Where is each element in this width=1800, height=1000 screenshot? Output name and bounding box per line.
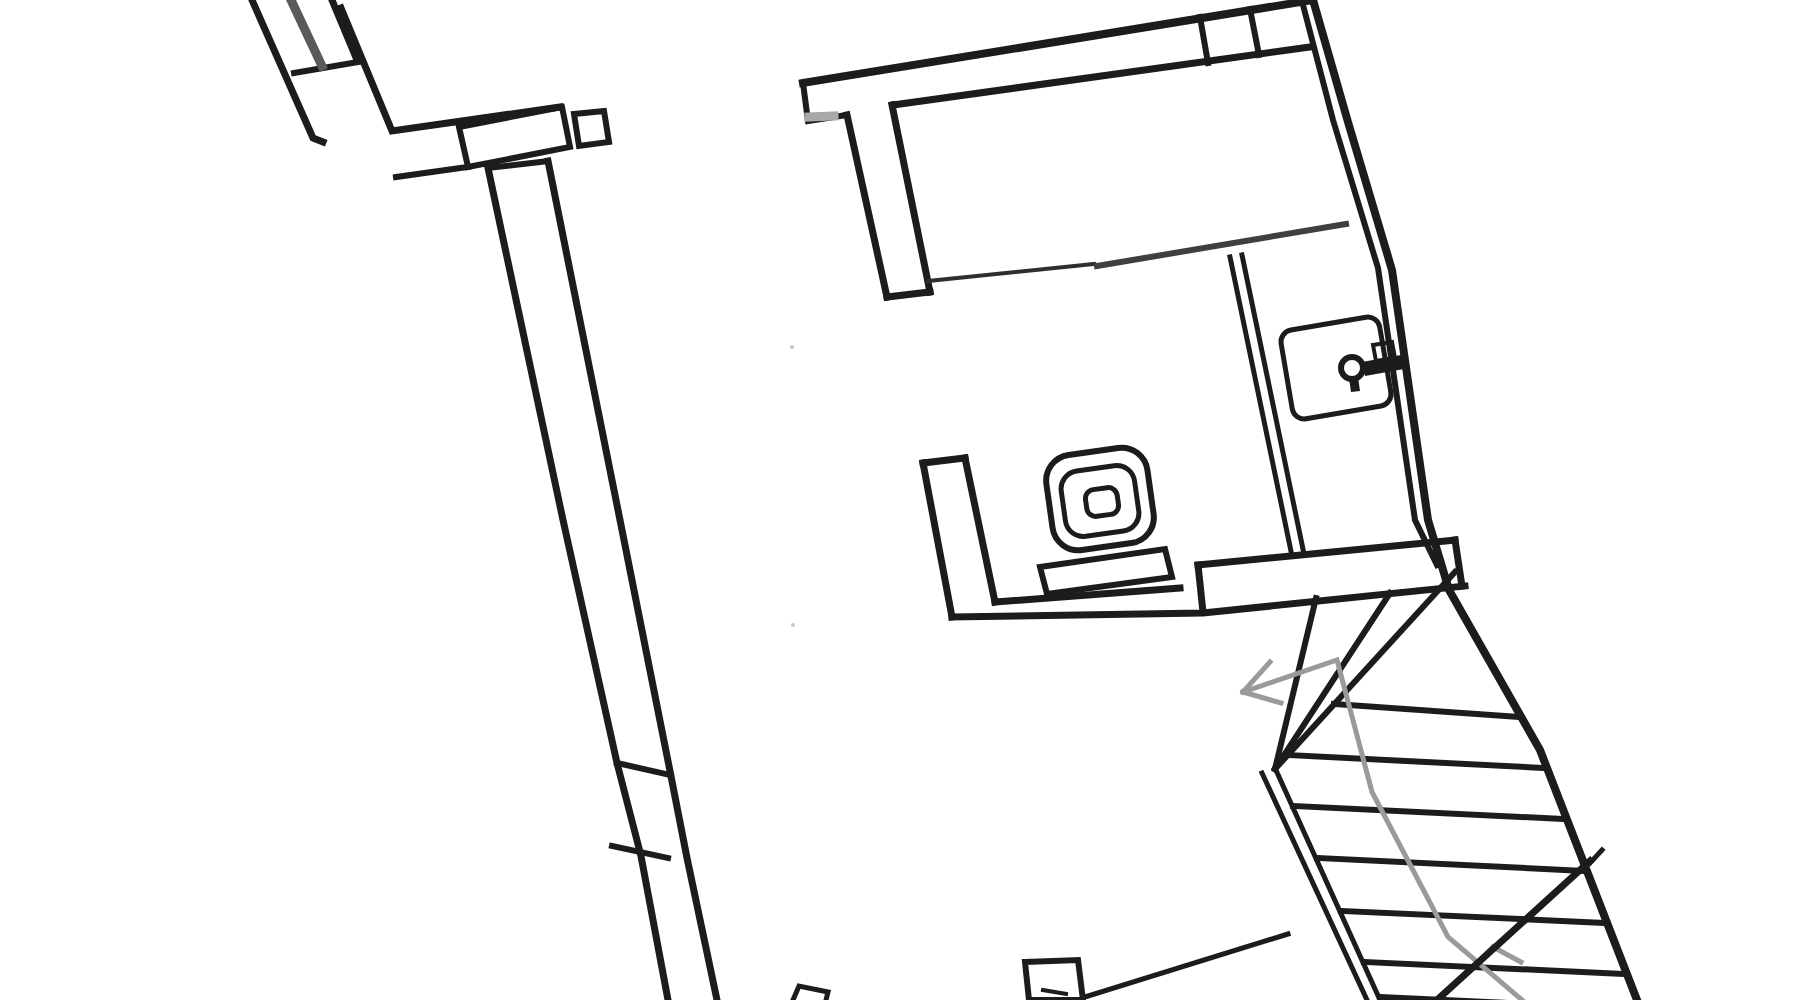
stair-tread-6 bbox=[1364, 962, 1626, 974]
stair-tread-1 bbox=[1334, 704, 1520, 717]
floor-plan-canvas bbox=[0, 0, 1800, 1000]
east-wall-inner bbox=[1303, 5, 1437, 565]
south-wall-l-cap bbox=[923, 458, 965, 463]
toilet-bowl-inner bbox=[1059, 463, 1141, 539]
ink-speck-2 bbox=[791, 623, 795, 627]
stair-tread-5 bbox=[1341, 911, 1607, 923]
walk-arrow-barb-down bbox=[1243, 692, 1281, 703]
stair-tread-3 bbox=[1293, 806, 1565, 819]
stairwell-top-wall-right-cap bbox=[1455, 540, 1462, 586]
ink-speck-1 bbox=[790, 345, 794, 349]
t-stem-right bbox=[892, 105, 930, 292]
bath-wall-right-line bbox=[1242, 255, 1304, 554]
south-wall-l-right bbox=[965, 458, 995, 602]
west-wall-tick-1 bbox=[617, 763, 670, 775]
bath-wall-left-line bbox=[1230, 257, 1292, 556]
toilet-drain bbox=[1084, 486, 1119, 517]
north-wall-gray-stub bbox=[809, 116, 834, 117]
stair-tread-2 bbox=[1287, 755, 1545, 768]
door-knob-ring bbox=[1341, 357, 1363, 379]
stair-pillar-mark bbox=[1043, 990, 1066, 994]
stair-walk-line bbox=[1243, 660, 1522, 1000]
floor-plan-page bbox=[0, 0, 1800, 1000]
east-wall-outer bbox=[1313, 0, 1637, 1000]
north-wall-tick-1 bbox=[1200, 17, 1208, 63]
stair-pillar bbox=[1025, 960, 1083, 1000]
south-wall-l-left bbox=[923, 463, 952, 617]
entry-wall-bottom bbox=[396, 167, 468, 177]
north-wall-tick-2 bbox=[1250, 9, 1259, 55]
north-wall-outer bbox=[803, 0, 1313, 83]
t-stem-cap bbox=[887, 292, 930, 297]
stair-break-line bbox=[1437, 861, 1590, 1000]
stairwell-top-wall-cap bbox=[1198, 565, 1203, 612]
stair-tread-4 bbox=[1317, 858, 1586, 871]
nw-window bbox=[291, 0, 322, 66]
partition-line-right bbox=[1097, 224, 1346, 266]
t-stem-left bbox=[847, 115, 887, 297]
stair-lower-edge bbox=[1085, 934, 1288, 997]
partition-line-left bbox=[928, 264, 1094, 281]
stair-stringer-right bbox=[1275, 768, 1380, 1000]
south-stub-wall bbox=[793, 986, 828, 1000]
stairwell-top-wall bbox=[1198, 540, 1455, 565]
stair-winder-2 bbox=[1275, 593, 1390, 769]
entry-pillar-box bbox=[574, 111, 609, 146]
